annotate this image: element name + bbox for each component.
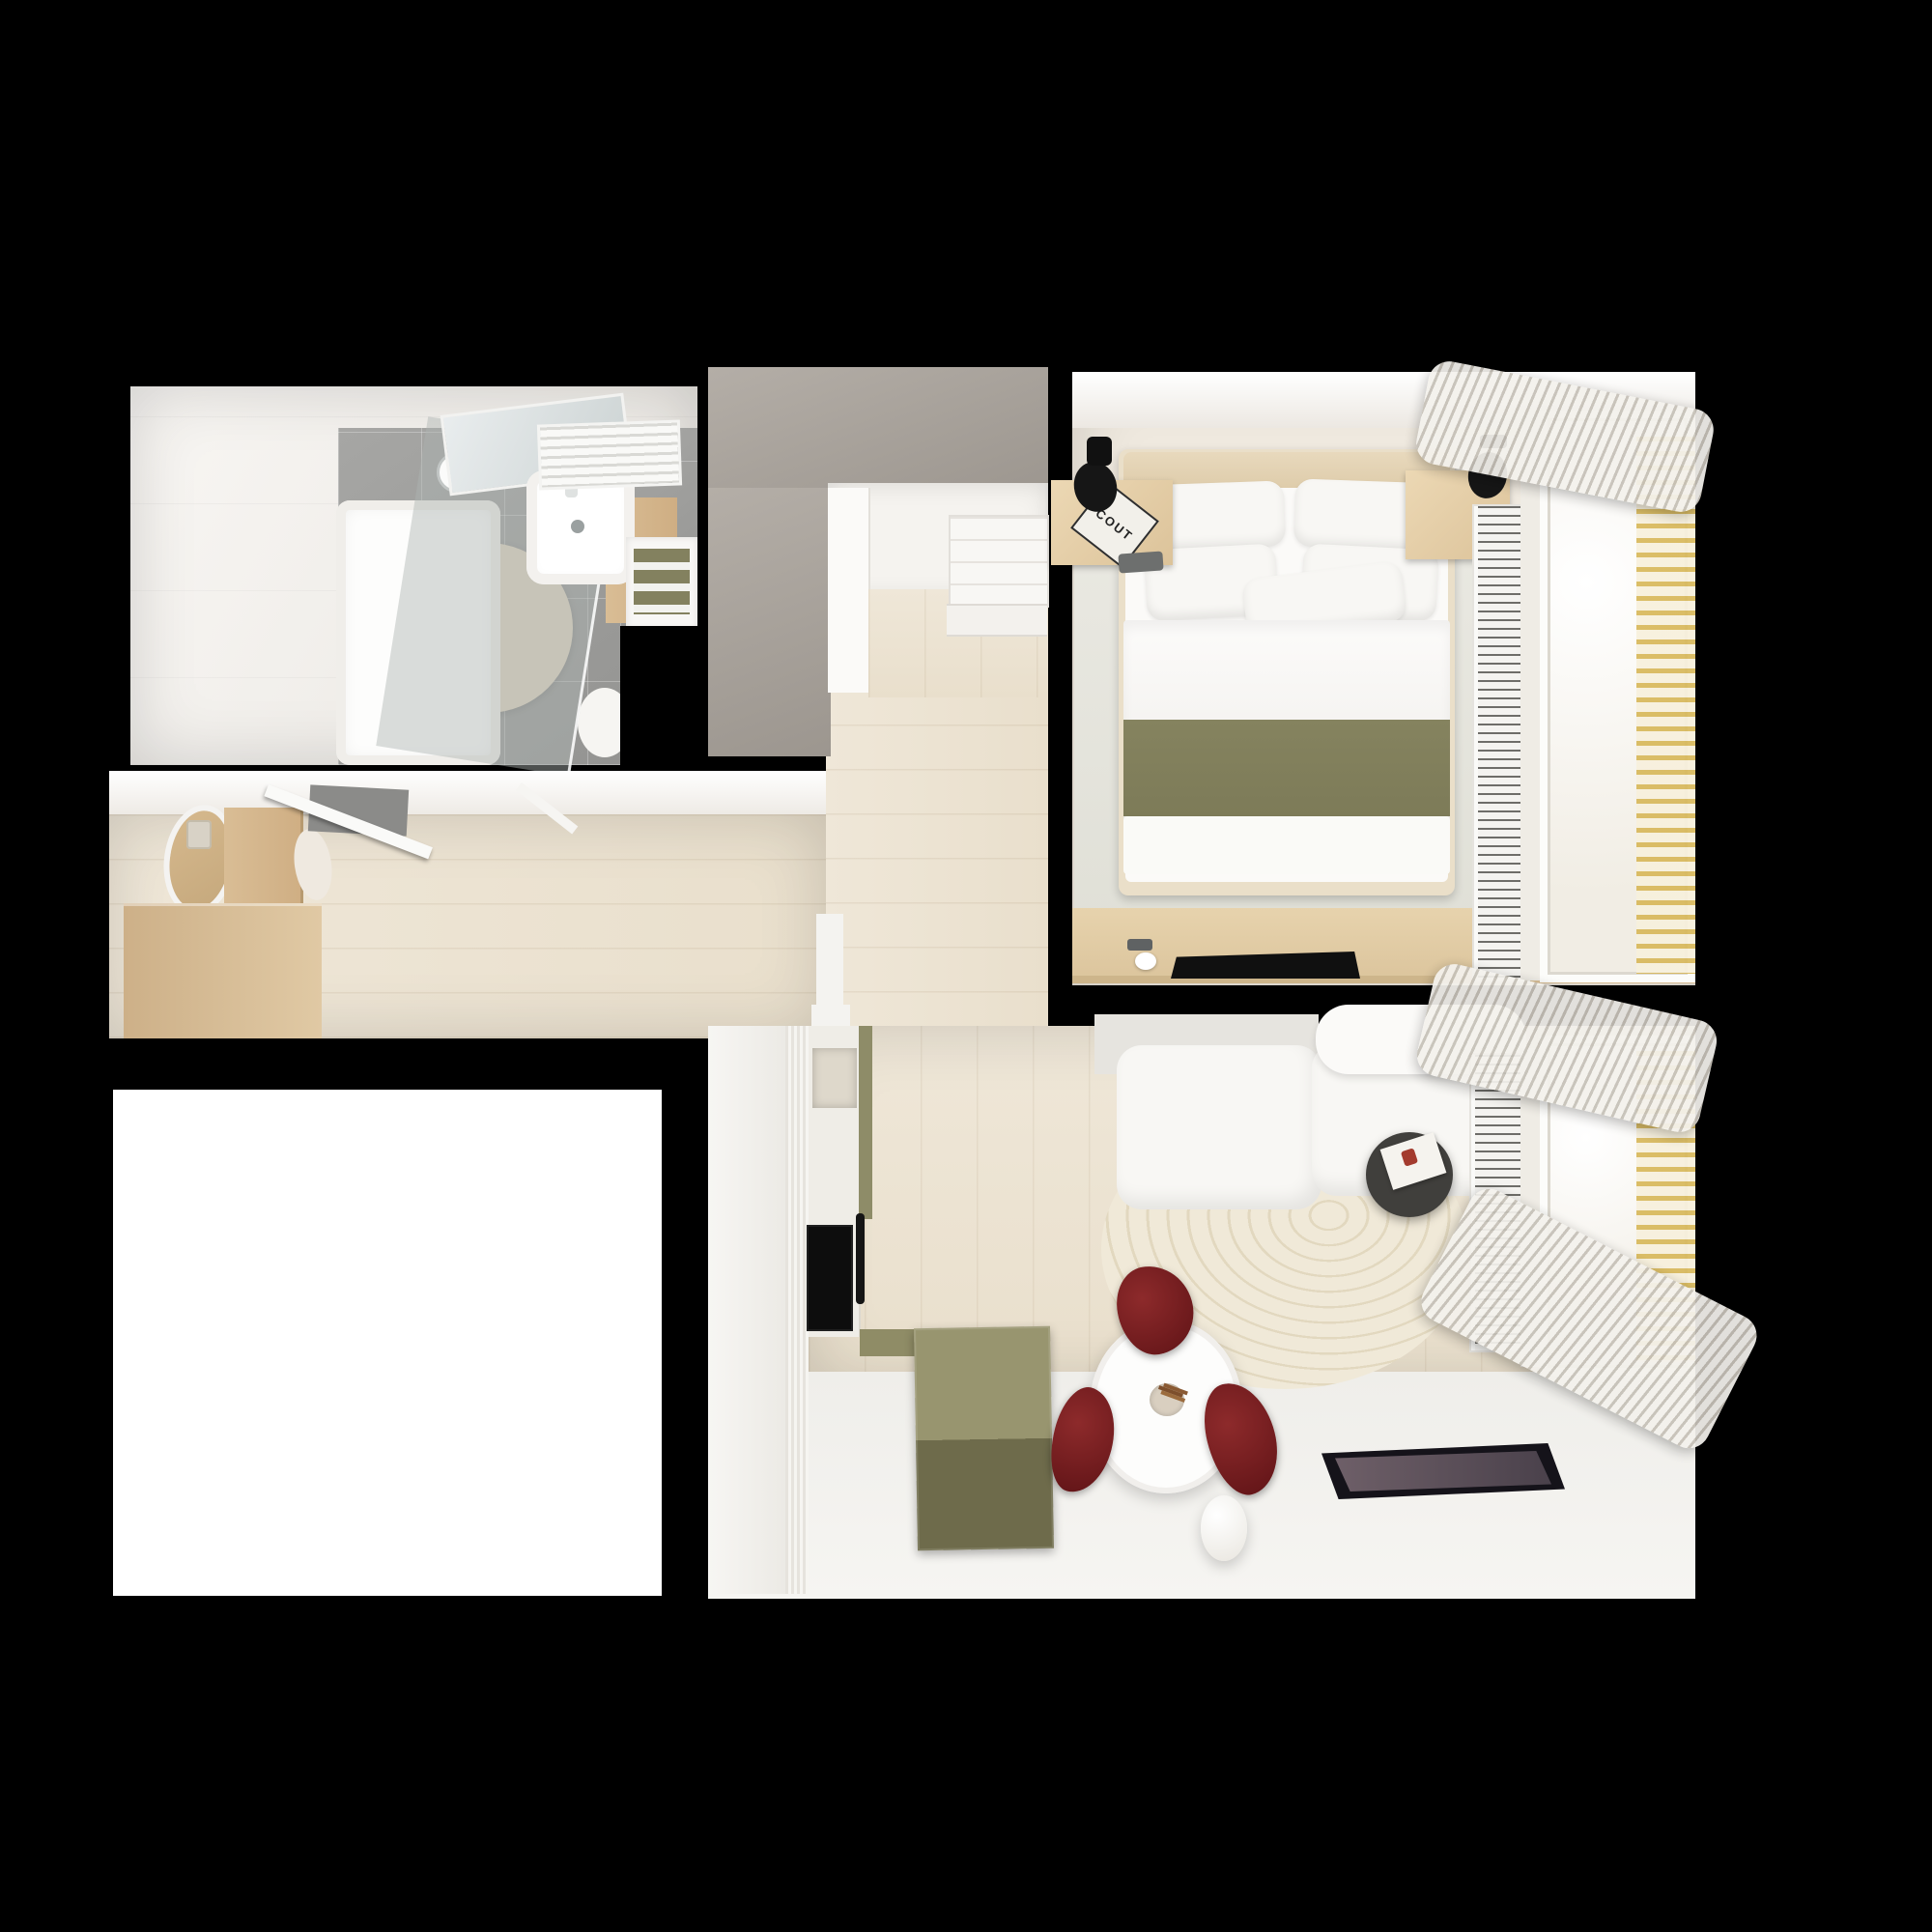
kitchen-fluted-edge <box>785 1026 809 1594</box>
light-switch <box>186 820 212 849</box>
laundry-cabinet <box>224 808 303 916</box>
wardrobe-top <box>708 367 1048 495</box>
washbasin-drain <box>571 520 584 533</box>
bedroom-blinds <box>1636 437 1695 974</box>
sofa-chaise <box>1117 1045 1321 1209</box>
wall-lamp-left-mount <box>1087 437 1112 466</box>
dining-bench <box>914 1326 1054 1550</box>
bench-shelf <box>860 1329 920 1356</box>
phone-on-desk <box>1127 939 1152 951</box>
closet-door-panel <box>828 488 870 693</box>
closet-shelf-unit <box>949 515 1049 608</box>
bedroom-windowsill <box>1520 415 1540 980</box>
floor-plan-render: COUT <box>0 0 1932 1932</box>
storage-cabinet <box>124 903 322 1038</box>
wall-notch <box>620 626 699 767</box>
induction-cooktop <box>807 1225 853 1331</box>
phone-on-nightstand <box>1118 551 1163 573</box>
oven-handle <box>856 1213 865 1304</box>
bed-foot-fold <box>1123 816 1450 874</box>
wardrobe-top <box>708 488 831 756</box>
counter-olive-edge <box>859 1026 872 1219</box>
towel-radiator <box>540 423 679 488</box>
bed-olive-blanket <box>1123 720 1450 816</box>
egg-decor <box>1201 1495 1247 1561</box>
olive-towels <box>634 549 690 614</box>
cup <box>1135 952 1156 970</box>
kitchen-tall-cabinets <box>708 1026 785 1594</box>
empty-room <box>113 1090 662 1596</box>
kitchen-sink <box>812 1048 857 1108</box>
closet-drawers <box>947 604 1047 637</box>
